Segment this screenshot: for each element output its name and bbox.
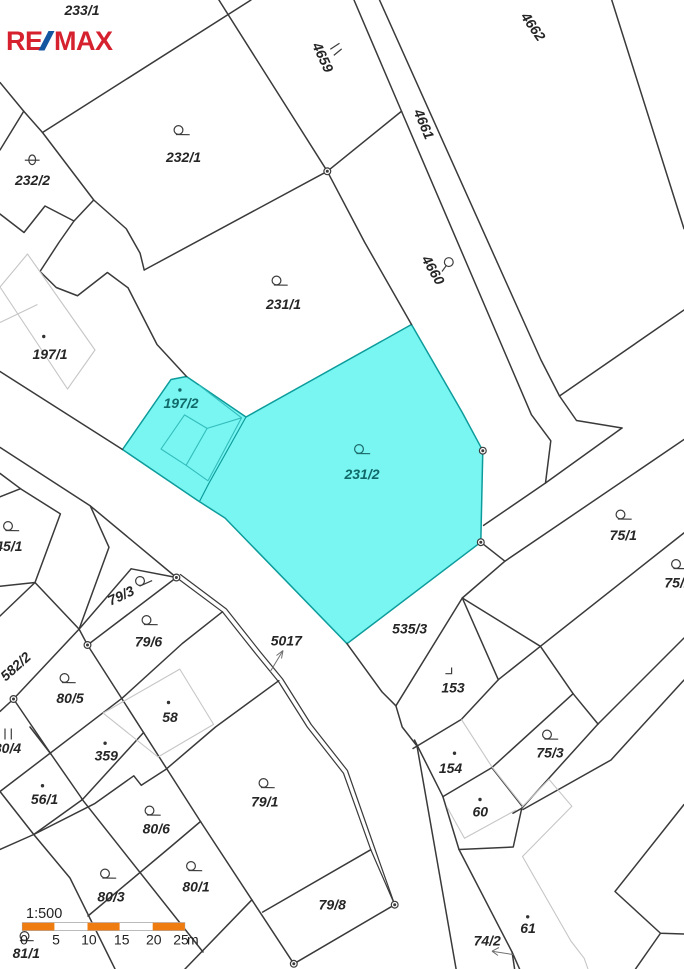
svg-text:75/1: 75/1 — [610, 527, 637, 543]
svg-text:61: 61 — [520, 920, 536, 936]
svg-text:75/2: 75/2 — [664, 575, 684, 591]
svg-text:197/2: 197/2 — [163, 395, 198, 411]
svg-text:154: 154 — [439, 760, 463, 776]
svg-text:74/2: 74/2 — [474, 933, 501, 949]
svg-text:535/3: 535/3 — [392, 621, 427, 637]
svg-text:5017: 5017 — [271, 633, 303, 649]
svg-text:75/3: 75/3 — [536, 745, 563, 761]
svg-text:45/1: 45/1 — [0, 538, 23, 554]
svg-text:80/6: 80/6 — [143, 821, 170, 837]
svg-text:m: m — [187, 932, 199, 948]
svg-text:0: 0 — [20, 932, 28, 948]
svg-text:232/1: 232/1 — [165, 149, 201, 165]
svg-text:58: 58 — [162, 709, 178, 725]
svg-text:231/1: 231/1 — [265, 296, 301, 312]
svg-text:10: 10 — [81, 932, 97, 948]
svg-text:233/1: 233/1 — [63, 2, 99, 18]
svg-text:80/5: 80/5 — [56, 690, 83, 706]
svg-text:RE: RE — [6, 26, 43, 56]
svg-text:197/1: 197/1 — [32, 346, 67, 362]
svg-text:60: 60 — [472, 804, 488, 820]
svg-text:56/1: 56/1 — [31, 791, 58, 807]
svg-text:15: 15 — [114, 932, 130, 948]
svg-text:5: 5 — [52, 932, 60, 948]
svg-text:80/3: 80/3 — [97, 889, 124, 905]
svg-text:80/4: 80/4 — [0, 740, 21, 756]
svg-text:153: 153 — [441, 680, 465, 696]
svg-text:232/2: 232/2 — [14, 172, 50, 188]
svg-text:1:500: 1:500 — [26, 906, 62, 922]
svg-text:79/1: 79/1 — [251, 794, 278, 810]
svg-text:359: 359 — [95, 748, 119, 764]
svg-text:80/1: 80/1 — [182, 879, 209, 895]
svg-text:79/6: 79/6 — [135, 634, 162, 650]
svg-text:20: 20 — [146, 932, 162, 948]
svg-text:231/2: 231/2 — [343, 466, 379, 482]
svg-text:79/8: 79/8 — [319, 897, 346, 913]
svg-text:MAX: MAX — [54, 26, 113, 56]
